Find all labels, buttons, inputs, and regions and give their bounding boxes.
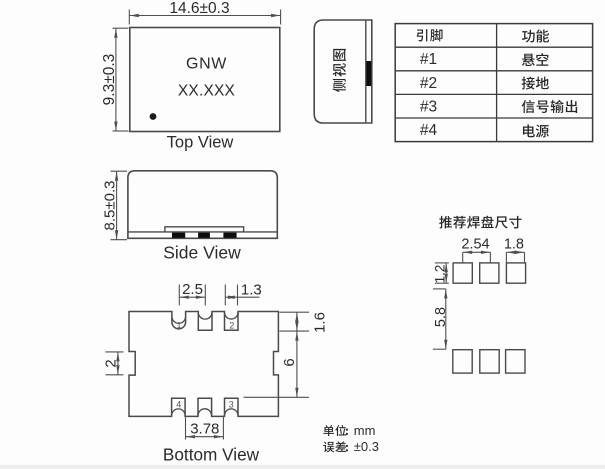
svg-text:±0.3: ±0.3 xyxy=(354,439,379,454)
svg-text:5.8: 5.8 xyxy=(433,307,449,327)
svg-text:9.3±0.3: 9.3±0.3 xyxy=(101,54,118,106)
svg-text:#3: #3 xyxy=(420,98,437,115)
svg-text:Side View: Side View xyxy=(163,243,241,263)
svg-text:6: 6 xyxy=(281,358,298,366)
svg-text:mm: mm xyxy=(354,423,376,438)
svg-text:2.5: 2.5 xyxy=(182,281,203,298)
svg-text:#4: #4 xyxy=(420,122,438,139)
svg-text:8.5±0.3: 8.5±0.3 xyxy=(101,181,118,231)
svg-text:#1: #1 xyxy=(420,51,437,68)
svg-text:3.78: 3.78 xyxy=(190,421,219,438)
svg-text:XX.XXX: XX.XXX xyxy=(178,83,236,100)
svg-text:2: 2 xyxy=(229,321,234,331)
svg-text:2: 2 xyxy=(103,359,120,367)
svg-text:1: 1 xyxy=(177,320,182,330)
svg-text:4: 4 xyxy=(176,400,181,410)
svg-text:1.6: 1.6 xyxy=(312,312,329,333)
svg-text:1.8: 1.8 xyxy=(504,237,524,253)
svg-text:14.6±0.3: 14.6±0.3 xyxy=(169,0,229,17)
svg-text:1.2: 1.2 xyxy=(433,265,448,284)
svg-text:Bottom View: Bottom View xyxy=(163,445,260,465)
svg-text:Top View: Top View xyxy=(167,134,234,152)
svg-text:2.54: 2.54 xyxy=(461,237,489,253)
svg-text:1.3: 1.3 xyxy=(241,281,262,298)
svg-text:GNW: GNW xyxy=(186,56,227,73)
svg-text:3: 3 xyxy=(229,400,234,410)
svg-text:#2: #2 xyxy=(420,75,437,92)
